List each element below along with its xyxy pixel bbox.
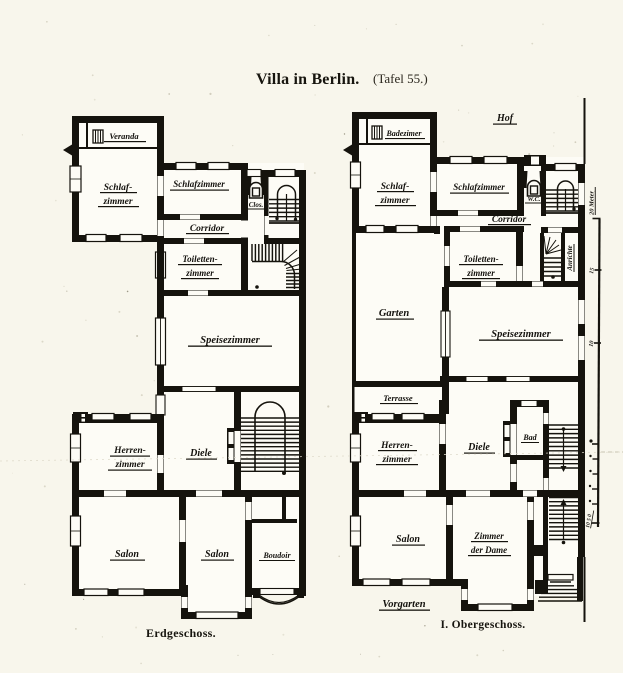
svg-text:I. Obergeschoss.: I. Obergeschoss. (441, 619, 526, 631)
svg-text:Schlafzimmer: Schlafzimmer (453, 182, 505, 192)
svg-text:20 Meter: 20 Meter (589, 191, 596, 216)
svg-text:Boudoir: Boudoir (262, 551, 291, 560)
svg-text:10: 10 (589, 340, 596, 347)
svg-text:Anrichte: Anrichte (566, 245, 574, 271)
svg-text:Diele: Diele (467, 442, 490, 453)
svg-text:zimmer: zimmer (379, 196, 409, 206)
svg-text:Corridor: Corridor (190, 224, 225, 234)
svg-text:Speisezimmer: Speisezimmer (491, 329, 551, 340)
svg-text:Badezimer: Badezimer (385, 129, 422, 138)
svg-text:Corridor: Corridor (492, 215, 527, 225)
svg-text:Schlafzimmer: Schlafzimmer (173, 179, 225, 189)
svg-text:Bad: Bad (522, 433, 537, 442)
svg-text:Herren-: Herren- (380, 441, 413, 451)
svg-text:Clos.: Clos. (249, 201, 264, 209)
svg-text:15: 15 (589, 267, 596, 274)
svg-text:zimmer: zimmer (114, 460, 144, 470)
svg-text:zimmer: zimmer (466, 268, 495, 278)
svg-text:(Tafel 55.): (Tafel 55.) (373, 71, 428, 86)
svg-text:Salon: Salon (396, 534, 420, 545)
svg-text:Garten: Garten (379, 308, 409, 319)
svg-text:zimmer: zimmer (185, 268, 214, 278)
svg-text:Diele: Diele (189, 448, 212, 459)
svg-text:Schlaf-: Schlaf- (381, 182, 410, 192)
svg-text:Veranda: Veranda (109, 131, 139, 141)
svg-text:zimmer: zimmer (381, 455, 411, 465)
svg-text:zimmer: zimmer (102, 197, 132, 207)
svg-text:der Dame: der Dame (471, 545, 507, 555)
svg-text:Hof: Hof (496, 113, 515, 124)
svg-text:Herren-: Herren- (113, 446, 146, 456)
svg-text:Villa in Berlin.: Villa in Berlin. (256, 71, 360, 88)
svg-text:W.C.: W.C. (528, 196, 541, 203)
svg-text:Toiletten-: Toiletten- (463, 254, 498, 264)
svg-text:Zimmer: Zimmer (473, 531, 504, 541)
svg-text:Erdgeschoss.: Erdgeschoss. (146, 626, 216, 640)
svg-text:Speisezimmer: Speisezimmer (200, 335, 260, 346)
svg-text:Toiletten-: Toiletten- (182, 254, 217, 264)
svg-text:Vorgarten: Vorgarten (382, 599, 425, 610)
svg-text:Schlaf-: Schlaf- (104, 183, 133, 193)
svg-text:Salon: Salon (205, 549, 229, 560)
svg-text:Terrasse: Terrasse (383, 393, 413, 403)
svg-text:Salon: Salon (115, 549, 139, 560)
